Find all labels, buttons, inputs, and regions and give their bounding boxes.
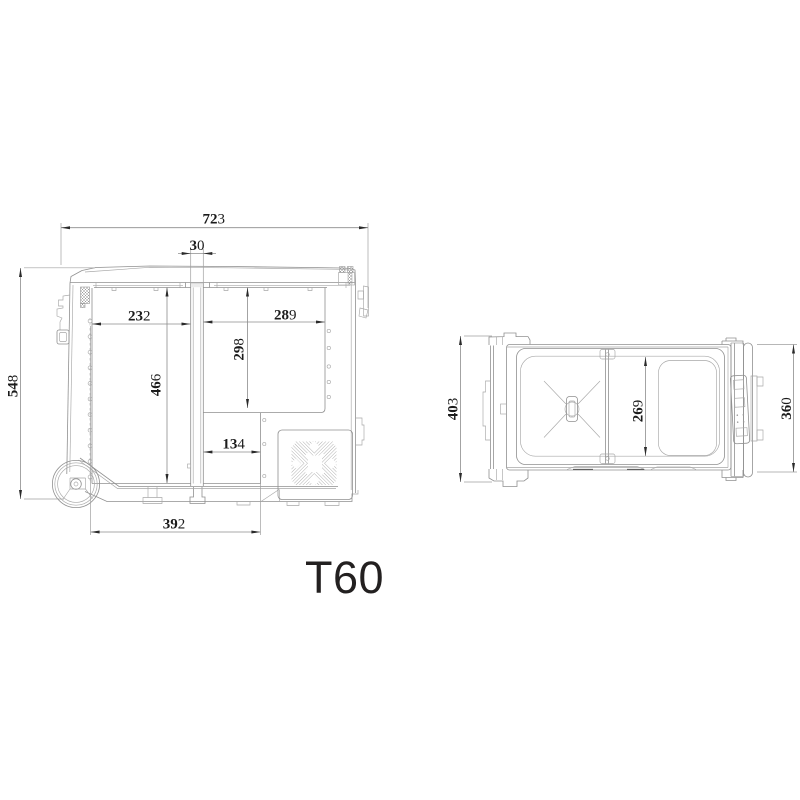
svg-text:298: 298 (232, 338, 248, 361)
svg-text:548: 548 (5, 375, 21, 398)
svg-text:360: 360 (779, 397, 795, 420)
svg-text:T60: T60 (305, 552, 384, 603)
svg-text:289: 289 (274, 308, 297, 324)
svg-text:232: 232 (128, 309, 151, 325)
svg-text:392: 392 (163, 517, 186, 533)
svg-text:134: 134 (222, 437, 245, 453)
svg-text:723: 723 (203, 212, 226, 228)
svg-text:30: 30 (190, 238, 205, 254)
svg-text:403: 403 (445, 398, 461, 421)
svg-text:269: 269 (631, 400, 647, 423)
svg-text:466: 466 (149, 373, 165, 396)
